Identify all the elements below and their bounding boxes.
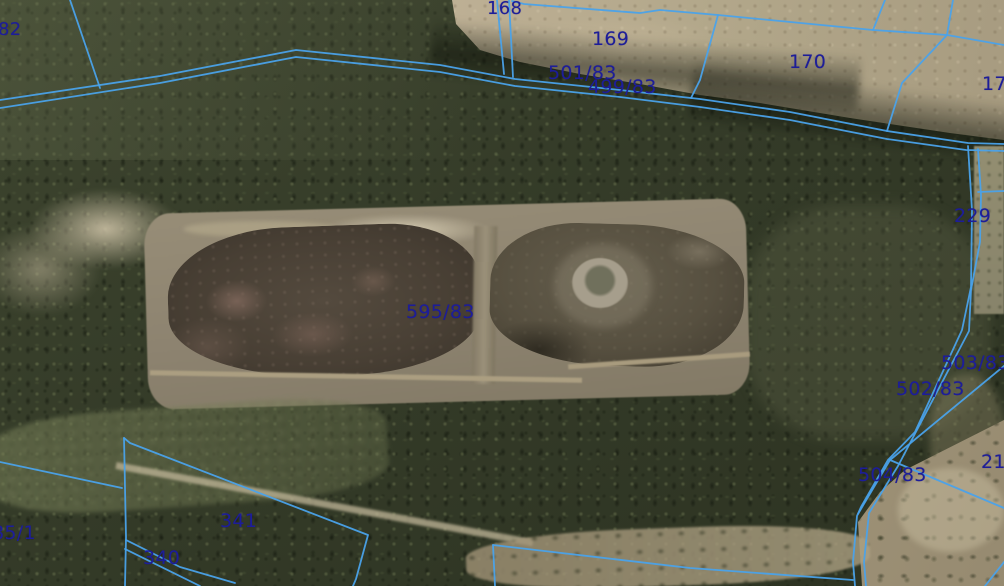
clearing-south xyxy=(465,521,871,586)
parcel-label: 503/83 xyxy=(941,352,1004,374)
parcel-boundary-line xyxy=(126,540,235,583)
parcel-label: 85/1 xyxy=(0,522,36,544)
parcel-boundary-line xyxy=(858,366,1004,514)
parcel-boundary-line xyxy=(493,545,495,586)
sand-clearing xyxy=(28,188,183,270)
field-bright-patch xyxy=(898,468,1004,552)
pond-island xyxy=(572,258,628,308)
pond-sand-rim xyxy=(322,214,490,246)
treeline-shadow xyxy=(428,17,861,112)
parcel-label: 341 xyxy=(220,510,257,532)
field-east-strip xyxy=(974,146,1004,314)
parcel-label: 170 xyxy=(789,51,826,73)
treeline-shadow xyxy=(687,59,1004,166)
parcel-boundary-line xyxy=(853,146,972,586)
meadow-west xyxy=(0,392,391,520)
parcel-label: 168 xyxy=(487,0,522,19)
central-clearing xyxy=(144,198,751,410)
parcel-boundary-line xyxy=(0,57,1004,151)
parcel-boundary-line xyxy=(887,35,947,131)
dirt-track xyxy=(150,370,582,383)
pond-west xyxy=(165,221,482,382)
parcel-boundaries-overlay xyxy=(0,0,1004,586)
parcel-label: 504/83 xyxy=(858,464,927,486)
parcel-boundary-line xyxy=(124,438,126,586)
parcel-label: 17 xyxy=(982,73,1004,95)
field-east-patch xyxy=(930,375,1004,505)
parcel-label: 82 xyxy=(0,19,22,40)
forest-light-patch xyxy=(0,0,470,160)
parcel-boundary-line xyxy=(890,460,1004,508)
pond-causeway xyxy=(472,226,498,384)
bare-field-north xyxy=(0,0,1004,145)
parcel-label: 229 xyxy=(954,205,991,227)
parcel-label: 340 xyxy=(143,547,180,569)
parcel-boundary-line xyxy=(985,562,1004,586)
dirt-track xyxy=(568,352,750,370)
parcel-boundary-line xyxy=(70,0,100,88)
parcel-label: 501/83 xyxy=(548,62,617,84)
parcel-boundary-line xyxy=(512,1,1004,45)
parcel-boundary-line xyxy=(864,149,981,586)
parcel-label: 21 xyxy=(981,451,1004,473)
map-viewport[interactable]: 82168169501/83499/8317017229595/83503/83… xyxy=(0,0,1004,586)
parcel-boundary-line xyxy=(0,462,122,488)
pond-east xyxy=(488,221,746,370)
parcel-label: 169 xyxy=(592,28,629,50)
field-southeast xyxy=(0,0,1004,586)
parcel-boundary-line xyxy=(873,0,885,30)
parcel-label: 499/83 xyxy=(588,76,657,98)
parcel-label: 595/83 xyxy=(406,301,475,323)
pond-shoal xyxy=(554,244,652,328)
forest-trail xyxy=(115,462,533,546)
forest-light-patch xyxy=(745,205,990,440)
parcel-boundary-line xyxy=(493,545,853,580)
parcel-boundary-line xyxy=(125,549,200,586)
parcel-boundary-line xyxy=(947,0,953,35)
parcel-boundary-line xyxy=(124,438,368,586)
parcel-boundary-line xyxy=(0,50,1004,144)
pond-sand-rim xyxy=(183,221,338,237)
parcel-boundary-line xyxy=(509,0,513,77)
parcel-boundary-line xyxy=(497,0,504,74)
sand-clearing xyxy=(0,222,103,317)
parcel-boundary-line xyxy=(691,15,718,98)
parcel-label: 502/83 xyxy=(896,378,965,400)
parcel-boundary-line xyxy=(978,191,1004,192)
